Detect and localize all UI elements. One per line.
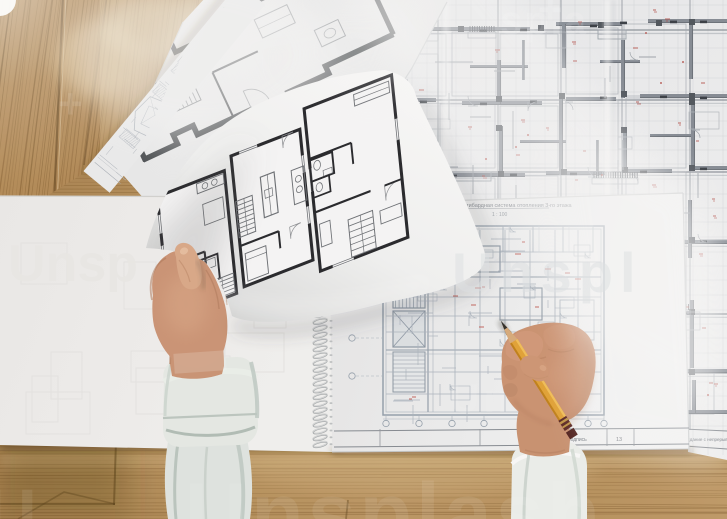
svg-text:Unspl: Unspl — [452, 241, 643, 304]
svg-text:Unsplash: Unsplash — [185, 466, 604, 519]
svg-text:+: + — [58, 80, 83, 127]
svg-text:U: U — [0, 475, 37, 519]
svg-text:spla: spla — [500, 0, 588, 43]
